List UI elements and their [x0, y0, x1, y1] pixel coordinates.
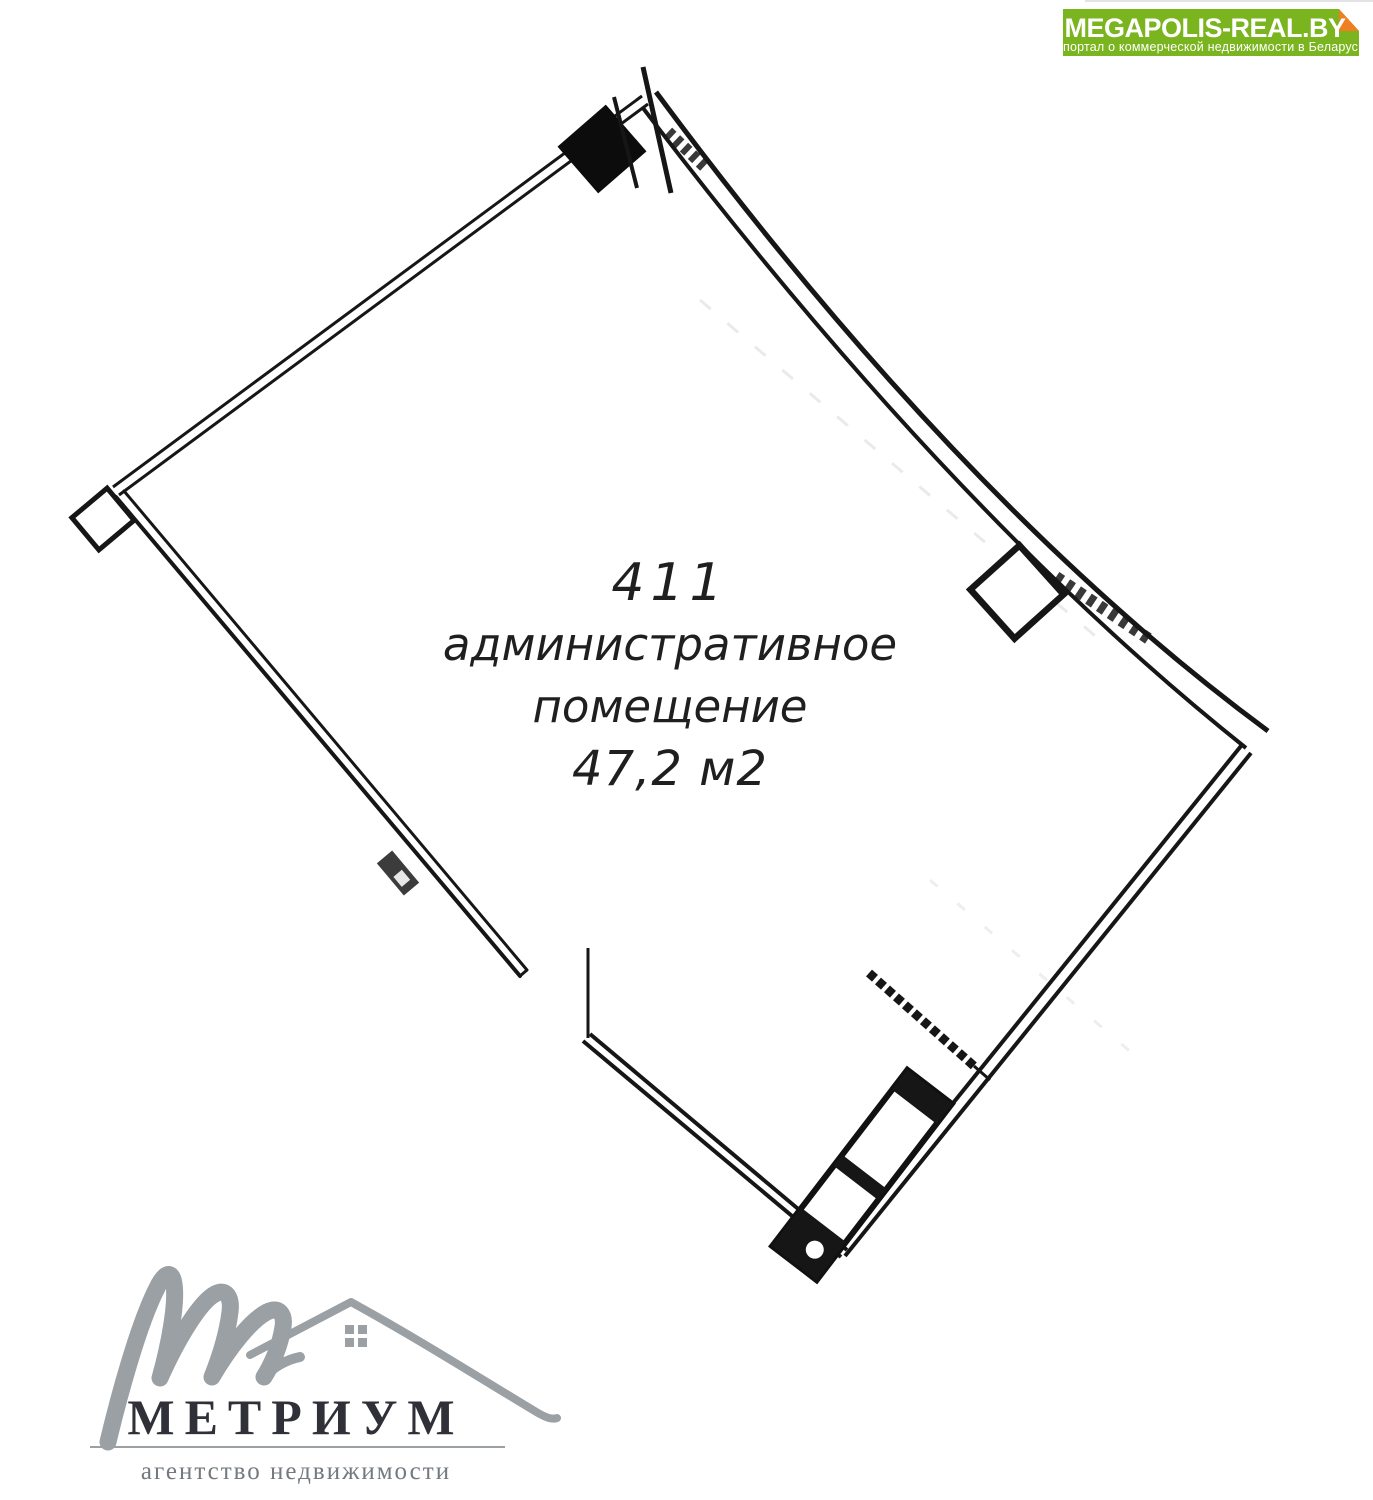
door-hinge-detail — [377, 850, 419, 895]
wall-fill-hatch — [1056, 577, 1152, 641]
room-area: 47,2 м2 — [400, 738, 940, 800]
page: MEGAPOLIS-REAL.BY портал о коммерческой … — [0, 0, 1373, 1500]
room-number: 411 — [400, 552, 940, 614]
scan-streak — [930, 880, 1140, 1060]
column-marker-right-wall — [970, 545, 1063, 638]
column-marker-left — [72, 488, 134, 550]
agency-divider — [90, 1446, 505, 1448]
agency-name: МЕТРИУМ — [56, 1388, 536, 1446]
interior-partition-stub — [869, 973, 974, 1066]
wall-left-endcap — [520, 970, 527, 976]
room-type-line2: помещение — [400, 676, 940, 738]
wall-top-left-outer — [113, 96, 642, 487]
logo-house-window — [345, 1325, 367, 1347]
stair-element — [772, 1070, 952, 1280]
room-type-line1: административное — [400, 614, 940, 676]
wall-top-left-inner — [119, 104, 648, 495]
room-label: 411 административное помещение 47,2 м2 — [400, 552, 940, 800]
agency-tagline: агентство недвижимости — [56, 1458, 536, 1486]
wall-stub-above-top — [643, 67, 671, 193]
